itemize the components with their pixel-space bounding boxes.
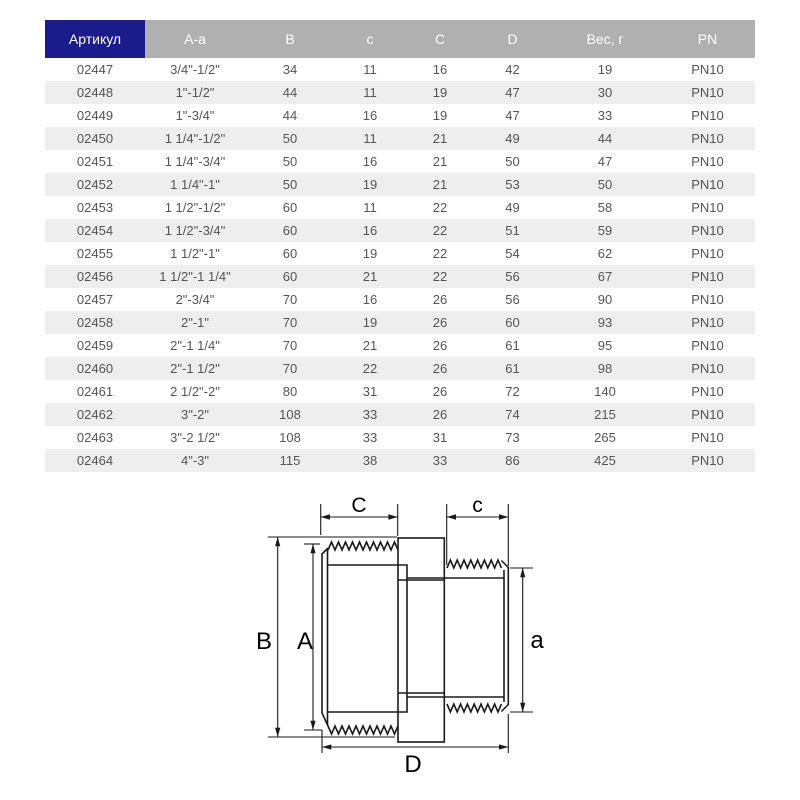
right-section-cap xyxy=(501,561,508,712)
table-cell: 72 xyxy=(475,380,550,403)
table-cell: 61 xyxy=(475,357,550,380)
table-cell: 31 xyxy=(405,426,475,449)
table-row: 024481"-1/2"4411194730PN10 xyxy=(45,81,755,104)
column-header: Вес, г xyxy=(550,20,660,58)
table-row: 024511 1/4"-3/4"5016215047PN10 xyxy=(45,150,755,173)
table-cell: 50 xyxy=(550,173,660,196)
table-cell: PN10 xyxy=(660,380,755,403)
dimension-label-D: D xyxy=(404,751,421,778)
table-cell: 47 xyxy=(475,81,550,104)
table-row: 024644"-3"115383386425PN10 xyxy=(45,449,755,472)
thread-zigzag-left-bottom xyxy=(328,726,398,734)
table-cell: 02448 xyxy=(45,81,145,104)
table-cell: 3/4"-1/2" xyxy=(145,58,245,81)
table-cell: 31 xyxy=(335,380,405,403)
table-cell: 50 xyxy=(245,173,335,196)
table-cell: 19 xyxy=(335,242,405,265)
table-cell: 2"-1 1/2" xyxy=(145,357,245,380)
table-cell: 33 xyxy=(405,449,475,472)
table-cell: 26 xyxy=(405,288,475,311)
table-cell: 02464 xyxy=(45,449,145,472)
table-cell: PN10 xyxy=(660,265,755,288)
table-cell: 47 xyxy=(475,104,550,127)
table-cell: 59 xyxy=(550,219,660,242)
dimension-A: A xyxy=(297,544,322,730)
table-cell: 60 xyxy=(245,219,335,242)
column-header: D xyxy=(475,20,550,58)
dimension-c: c xyxy=(447,494,509,566)
table-cell: 38 xyxy=(335,449,405,472)
table-cell: 26 xyxy=(405,334,475,357)
table-cell: 1 1/4"-3/4" xyxy=(145,150,245,173)
table-cell: 22 xyxy=(335,357,405,380)
table-cell: 02447 xyxy=(45,58,145,81)
table-cell: 19 xyxy=(405,104,475,127)
dimension-B: B xyxy=(256,537,397,737)
spec-table: АртикулА-аВсСDВес, гPN 024473/4"-1/2"341… xyxy=(45,20,755,472)
column-header: с xyxy=(335,20,405,58)
table-cell: 70 xyxy=(245,311,335,334)
table-cell: PN10 xyxy=(660,150,755,173)
table-cell: 02462 xyxy=(45,403,145,426)
table-cell: 1 1/2"-1" xyxy=(145,242,245,265)
table-cell: 34 xyxy=(245,58,335,81)
table-cell: 16 xyxy=(405,58,475,81)
table-cell: 21 xyxy=(405,127,475,150)
table-cell: 19 xyxy=(550,58,660,81)
table-cell: 56 xyxy=(475,288,550,311)
table-cell: 3"-2" xyxy=(145,403,245,426)
dimension-label-C: C xyxy=(351,494,366,517)
table-cell: 1 1/4"-1" xyxy=(145,173,245,196)
table-cell: 4"-3" xyxy=(145,449,245,472)
table-row: 024551 1/2"-1"6019225462PN10 xyxy=(45,242,755,265)
table-cell: 56 xyxy=(475,265,550,288)
table-cell: 02459 xyxy=(45,334,145,357)
table-cell: PN10 xyxy=(660,449,755,472)
dimension-label-a: a xyxy=(530,627,544,654)
table-cell: 74 xyxy=(475,403,550,426)
table-row: 024612 1/2"-2"80312672140PN10 xyxy=(45,380,755,403)
table-cell: 1"-3/4" xyxy=(145,104,245,127)
table-cell: PN10 xyxy=(660,426,755,449)
table-cell: 19 xyxy=(405,81,475,104)
table-cell: PN10 xyxy=(660,104,755,127)
table-cell: 44 xyxy=(245,104,335,127)
dimension-D: D xyxy=(322,714,508,778)
table-row: 024592"-1 1/4"7021266195PN10 xyxy=(45,334,755,357)
table-cell: 33 xyxy=(550,104,660,127)
table-cell: 80 xyxy=(245,380,335,403)
table-cell: 2"-1 1/4" xyxy=(145,334,245,357)
column-header: С xyxy=(405,20,475,58)
thread-zigzag-right-top xyxy=(447,560,501,568)
table-cell: 02453 xyxy=(45,196,145,219)
table-row: 024521 1/4"-1"5019215350PN10 xyxy=(45,173,755,196)
table-cell: 44 xyxy=(245,81,335,104)
table-cell: 1 1/4"-1/2" xyxy=(145,127,245,150)
table-cell: 50 xyxy=(475,150,550,173)
table-cell: 115 xyxy=(245,449,335,472)
table-cell: 26 xyxy=(405,380,475,403)
table-row: 024572"-3/4"7016265690PN10 xyxy=(45,288,755,311)
table-cell: 49 xyxy=(475,127,550,150)
fitting-body xyxy=(322,538,508,742)
table-cell: 11 xyxy=(335,81,405,104)
table-cell: 1"-1/2" xyxy=(145,81,245,104)
table-cell: 61 xyxy=(475,334,550,357)
table-row: 024623"-2"108332674215PN10 xyxy=(45,403,755,426)
table-cell: 60 xyxy=(245,196,335,219)
table-cell: 70 xyxy=(245,334,335,357)
table-cell: 108 xyxy=(245,403,335,426)
table-cell: 26 xyxy=(405,403,475,426)
table-cell: 11 xyxy=(335,58,405,81)
thread-zigzag-left-top xyxy=(328,542,398,550)
table-cell: PN10 xyxy=(660,58,755,81)
table-cell: 16 xyxy=(335,219,405,242)
table-cell: 21 xyxy=(335,334,405,357)
table-cell: 54 xyxy=(475,242,550,265)
table-cell: 1 1/2"-1 1/4" xyxy=(145,265,245,288)
table-cell: 02457 xyxy=(45,288,145,311)
table-cell: 02461 xyxy=(45,380,145,403)
table-cell: 108 xyxy=(245,426,335,449)
left-section-bore xyxy=(328,565,407,712)
table-cell: 60 xyxy=(245,265,335,288)
table-cell: PN10 xyxy=(660,357,755,380)
table-cell: 86 xyxy=(475,449,550,472)
table-cell: 1 1/2"-3/4" xyxy=(145,219,245,242)
table-cell: 02463 xyxy=(45,426,145,449)
table-cell: 60 xyxy=(475,311,550,334)
table-cell: 30 xyxy=(550,81,660,104)
table-row: 024561 1/2"-1 1/4"6021225667PN10 xyxy=(45,265,755,288)
table-cell: 67 xyxy=(550,265,660,288)
table-cell: 2"-3/4" xyxy=(145,288,245,311)
table-cell: 95 xyxy=(550,334,660,357)
table-cell: PN10 xyxy=(660,334,755,357)
table-cell: 22 xyxy=(405,242,475,265)
table-row: 024582"-1"7019266093PN10 xyxy=(45,311,755,334)
table-cell: 02458 xyxy=(45,311,145,334)
table-cell: 44 xyxy=(550,127,660,150)
table-cell: 19 xyxy=(335,173,405,196)
table-cell: 16 xyxy=(335,104,405,127)
table-cell: 16 xyxy=(335,150,405,173)
table-cell: 3"-2 1/2" xyxy=(145,426,245,449)
table-row: 024491"-3/4"4416194733PN10 xyxy=(45,104,755,127)
table-cell: PN10 xyxy=(660,173,755,196)
table-cell: 98 xyxy=(550,357,660,380)
table-cell: 21 xyxy=(405,173,475,196)
table-cell: 11 xyxy=(335,196,405,219)
table-cell: PN10 xyxy=(660,242,755,265)
dimension-label-B: B xyxy=(256,628,272,655)
table-cell: 47 xyxy=(550,150,660,173)
table-cell: PN10 xyxy=(660,403,755,426)
table-cell: 51 xyxy=(475,219,550,242)
table-cell: 22 xyxy=(405,196,475,219)
table-cell: PN10 xyxy=(660,219,755,242)
table-cell: 02460 xyxy=(45,357,145,380)
table-cell: 02452 xyxy=(45,173,145,196)
table-cell: 50 xyxy=(245,127,335,150)
table-row: 024541 1/2"-3/4"6016225159PN10 xyxy=(45,219,755,242)
column-header: А-а xyxy=(145,20,245,58)
table-cell: 11 xyxy=(335,127,405,150)
table-cell: PN10 xyxy=(660,127,755,150)
table-cell: 19 xyxy=(335,311,405,334)
table-cell: 02449 xyxy=(45,104,145,127)
table-cell: 93 xyxy=(550,311,660,334)
table-cell: PN10 xyxy=(660,81,755,104)
table-header: АртикулА-аВсСDВес, гPN xyxy=(45,20,755,58)
table-cell: 02455 xyxy=(45,242,145,265)
table-header-row: АртикулА-аВсСDВес, гPN xyxy=(45,20,755,58)
table-row: 024501 1/4"-1/2"5011214944PN10 xyxy=(45,127,755,150)
table-cell: 16 xyxy=(335,288,405,311)
table-row: 024633"-2 1/2"108333173265PN10 xyxy=(45,426,755,449)
table-cell: 22 xyxy=(405,265,475,288)
table-row: 024602"-1 1/2"7022266198PN10 xyxy=(45,357,755,380)
column-header: PN xyxy=(660,20,755,58)
table-cell: 49 xyxy=(475,196,550,219)
dimension-C: C xyxy=(321,494,398,536)
table-cell: 02456 xyxy=(45,265,145,288)
table-cell: 73 xyxy=(475,426,550,449)
dimension-label-c: c xyxy=(472,494,483,517)
table-cell: PN10 xyxy=(660,288,755,311)
fitting-drawing: C c B A a xyxy=(230,490,560,800)
table-cell: 53 xyxy=(475,173,550,196)
table-cell: 1 1/2"-1/2" xyxy=(145,196,245,219)
table-cell: 22 xyxy=(405,219,475,242)
table-cell: 425 xyxy=(550,449,660,472)
table-cell: 265 xyxy=(550,426,660,449)
table-cell: 42 xyxy=(475,58,550,81)
table-cell: 02450 xyxy=(45,127,145,150)
table-cell: 60 xyxy=(245,242,335,265)
table-cell: 70 xyxy=(245,357,335,380)
table-cell: 90 xyxy=(550,288,660,311)
table-cell: 58 xyxy=(550,196,660,219)
column-header: В xyxy=(245,20,335,58)
table-body: 024473/4"-1/2"3411164219PN10024481"-1/2"… xyxy=(45,58,755,472)
table-cell: 140 xyxy=(550,380,660,403)
table-cell: 2 1/2"-2" xyxy=(145,380,245,403)
table-cell: 33 xyxy=(335,403,405,426)
table-cell: 21 xyxy=(405,150,475,173)
table-cell: 26 xyxy=(405,311,475,334)
thread-zigzag-right-bottom xyxy=(447,704,501,712)
table-cell: 02451 xyxy=(45,150,145,173)
table-row: 024531 1/2"-1/2"6011224958PN10 xyxy=(45,196,755,219)
table-cell: 62 xyxy=(550,242,660,265)
table-cell: 26 xyxy=(405,357,475,380)
table-cell: 33 xyxy=(335,426,405,449)
table-cell: PN10 xyxy=(660,311,755,334)
table-cell: 50 xyxy=(245,150,335,173)
table-cell: 02454 xyxy=(45,219,145,242)
table-cell: 21 xyxy=(335,265,405,288)
table-cell: 215 xyxy=(550,403,660,426)
table-cell: 2"-1" xyxy=(145,311,245,334)
table-row: 024473/4"-1/2"3411164219PN10 xyxy=(45,58,755,81)
dimension-a: a xyxy=(510,568,544,712)
dimension-label-A: A xyxy=(297,628,313,655)
table-cell: PN10 xyxy=(660,196,755,219)
column-header: Артикул xyxy=(45,20,145,58)
table-cell: 70 xyxy=(245,288,335,311)
